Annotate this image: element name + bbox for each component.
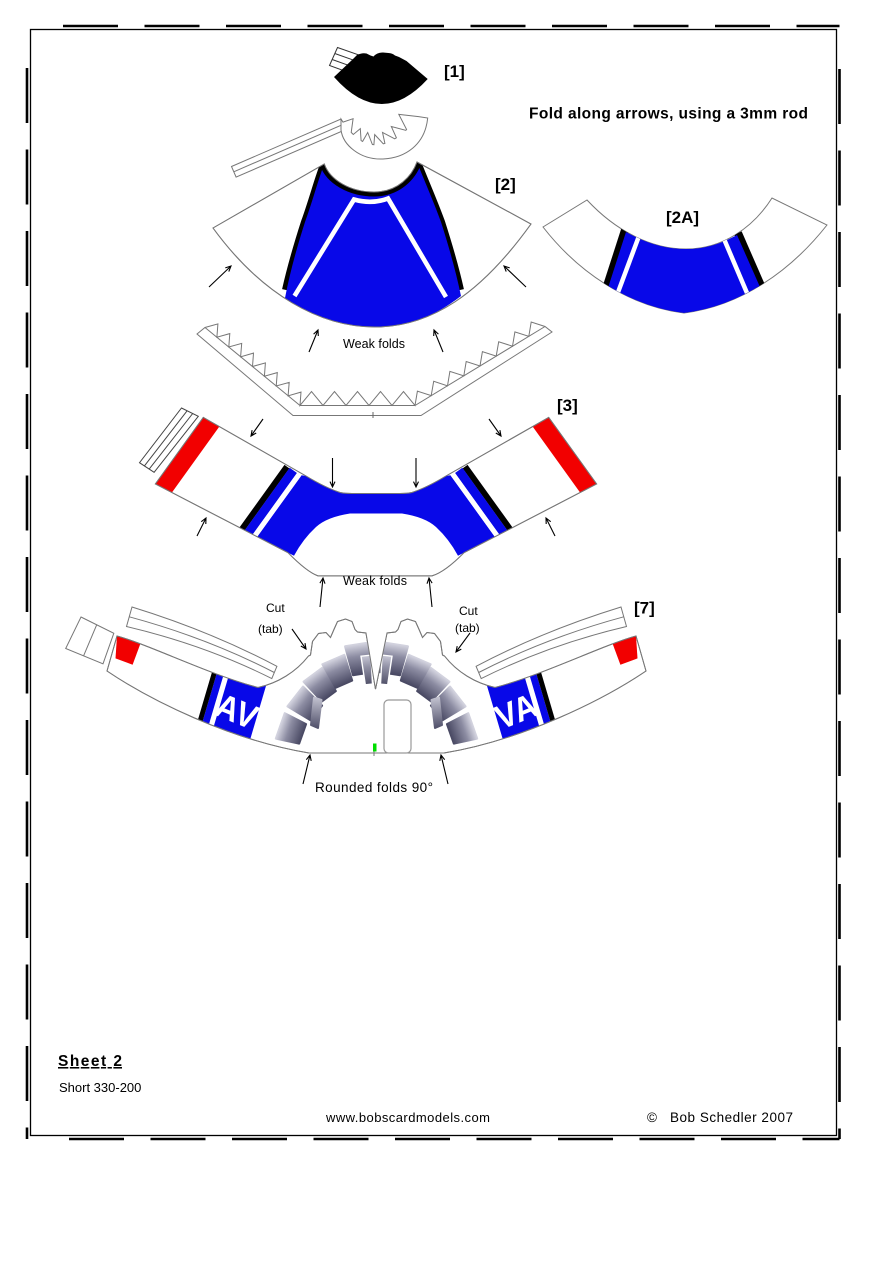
svg-text:Cut: Cut bbox=[266, 601, 285, 615]
svg-text:Rounded folds 90°: Rounded folds 90° bbox=[315, 780, 433, 795]
svg-text:Cut: Cut bbox=[459, 604, 478, 618]
svg-text:©: © bbox=[647, 1110, 657, 1125]
svg-text:Bob Schedler 2007: Bob Schedler 2007 bbox=[670, 1110, 793, 1125]
svg-text:www.bobscardmodels.com: www.bobscardmodels.com bbox=[325, 1110, 490, 1125]
svg-text:[2]: [2] bbox=[495, 175, 516, 194]
svg-text:Short 330-200: Short 330-200 bbox=[59, 1080, 141, 1095]
svg-text:Sheet 2: Sheet 2 bbox=[58, 1053, 122, 1070]
svg-text:[7]: [7] bbox=[634, 599, 655, 618]
svg-text:[1]: [1] bbox=[444, 62, 465, 81]
svg-text:(tab): (tab) bbox=[258, 622, 283, 636]
svg-text:Fold along arrows, using a 3mm: Fold along arrows, using a 3mm rod bbox=[529, 106, 808, 123]
svg-text:[2A]: [2A] bbox=[666, 208, 699, 227]
svg-text:Weak folds: Weak folds bbox=[343, 337, 405, 351]
svg-text:(tab): (tab) bbox=[455, 621, 480, 635]
svg-text:[3]: [3] bbox=[557, 396, 578, 415]
svg-text:Weak folds: Weak folds bbox=[343, 574, 407, 588]
